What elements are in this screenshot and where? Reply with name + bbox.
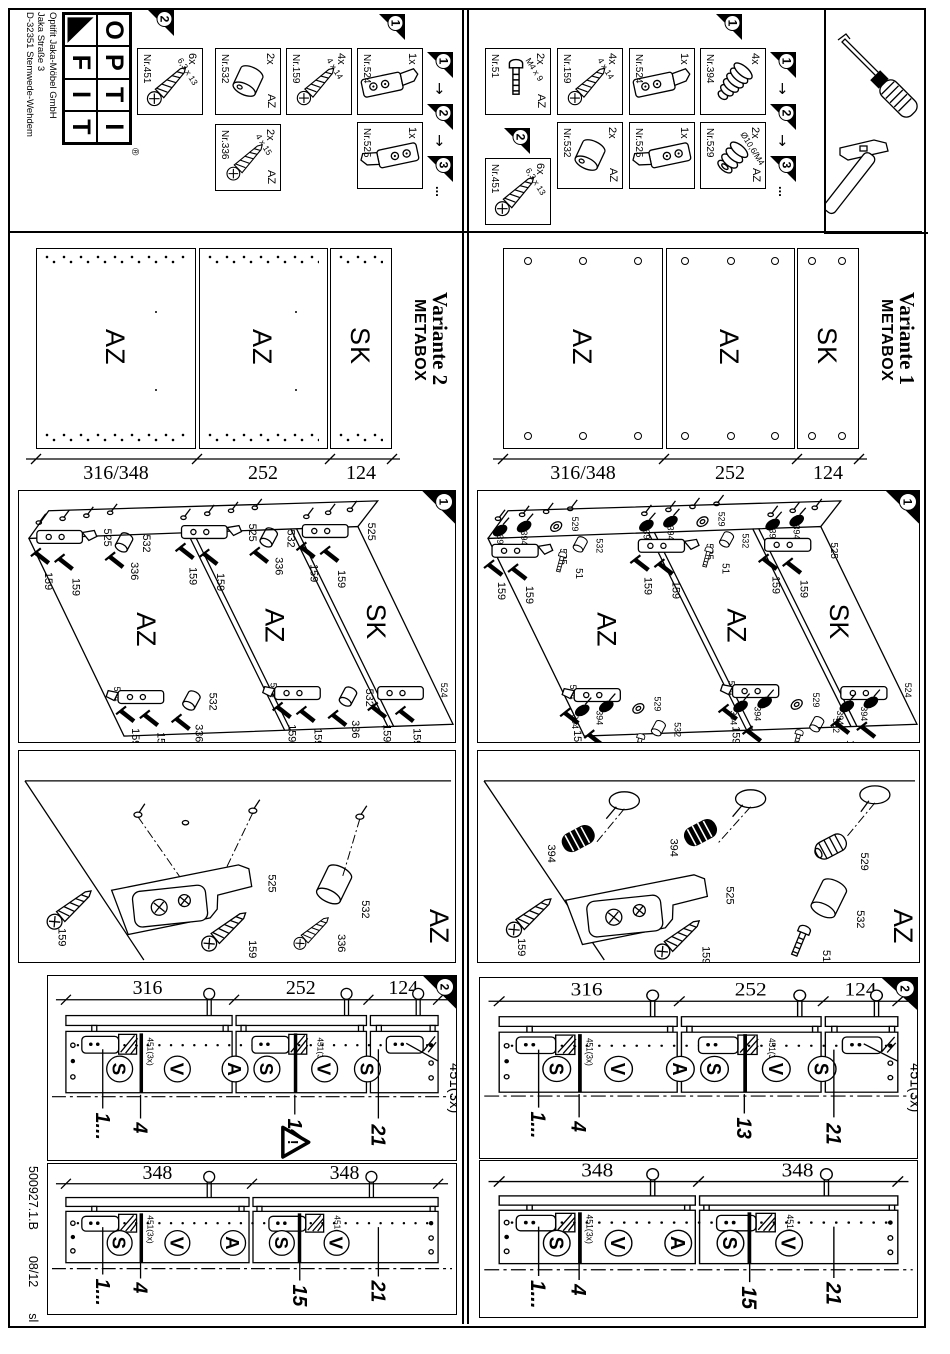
dimension-strip-v2: 316/348 252 124 [18,450,455,482]
part-ref: 159 [571,730,583,742]
panel-sk-v2: SK [330,248,392,449]
column-divider [462,8,464,1324]
sequence-more: ... [776,186,791,197]
hardware-group-top-sk: 394 394 525 159 159 [759,499,839,598]
hardware-group-top: 394 394 529 525 532 51 159 159 [484,500,604,604]
screw-159-icon [503,893,555,940]
panel-label: AZ [888,909,918,943]
logo-letter: I [97,111,130,143]
part-ref: 336 [128,562,140,580]
part-number: Nr.532 [219,54,230,83]
panel-label: SK [344,327,375,365]
flag-number: 3 [780,162,794,169]
arrow-down-icon: ↓ [776,80,789,98]
part-number: Nr.451 [141,54,152,83]
template-a-drawing-v1: 13 2 [480,978,917,1158]
logo-letter: T [64,111,97,143]
part-qty: 2x [606,127,618,139]
dimension-strip-v1 [485,450,922,482]
logo-letter: O [97,14,130,46]
panel-label: SK [824,604,854,640]
part-ref: 159 [70,578,82,596]
part-ref: 529 [858,853,870,871]
instruction-sheet: Optifit Jaka-Möbel GmbH Jaka Straße 3 D-… [0,0,950,1354]
part-ref: 524 [439,683,449,698]
step-flag-1: 1 [379,14,405,40]
detail-drawing-v1: 394 394 529 532 51 525 159 159 AZ [478,751,919,962]
slot-letter: S [256,1063,277,1076]
company-street: Jaka Straße 3 [35,12,47,202]
part-tag: AZ [265,170,277,184]
part-ref: 159 [495,582,507,600]
detail-box-v1: 394 394 529 532 51 525 159 159 AZ [477,750,920,963]
step1-drawing-v2: AZ AZ SK 525 532 336 159 159 525 [19,491,455,742]
variant1-subtitle: METABOX [877,299,895,381]
part-ref: 525 [365,523,377,541]
panel-az-2-v2: AZ [199,248,328,449]
part-box-529: 2x Nr.529 Ø10,6/M4 AZ [700,122,766,189]
part-ref: 159 [770,576,782,594]
step-flag-1: 1 [716,14,742,40]
company-name: Optifit Jaka-Möbel GmbH [47,12,59,202]
part-box-525: 1x Nr.525 [357,122,423,189]
part-ref: 394 [859,706,869,721]
mark-1: 1... [91,1113,113,1140]
part-ref: 394 [594,710,604,725]
step1-box-v2: AZ AZ SK 525 532 336 159 159 525 [18,490,456,743]
panel-az-1-v2: AZ [36,248,196,449]
dowel-394 [558,822,597,855]
part-ref: 532 [594,538,604,553]
step1-box-v1: AZ AZ SK 394 394 529 525 532 51 159 [477,490,920,743]
document-footer: 500927.1.B08/12sl [26,1166,40,1348]
bolt-51-icon [789,924,812,958]
dim-label: 348 [143,1164,173,1184]
part-tag: AZ [607,168,619,182]
part-ref: 159 [410,728,422,742]
flag-number: 3 [437,162,451,169]
hammer-icon [826,140,888,215]
part-box-51: 2x Nr.51 M4 x 9 AZ [485,48,551,115]
part-ref: 532 [140,534,152,552]
detail-drawing-v2: 159 159 525 532 336 AZ [19,751,455,962]
company-block: Optifit Jaka-Möbel GmbH Jaka Straße 3 D-… [24,12,64,212]
document-number: 500927.1.B [26,1166,40,1230]
part-box-525: 1x Nr.525 [629,122,695,189]
part-number: Nr.336 [219,130,230,159]
slot-letter: V [166,1237,187,1250]
corner-flag-2: 2 [882,978,917,1010]
registered-mark: ® [129,148,140,155]
part-ref: 525 [101,529,113,547]
mark-1: 1... [91,1278,113,1305]
drill-dots [339,254,383,265]
panel-label: AZ [424,909,454,943]
sequence-more: ... [433,186,448,197]
template-a-v1: 13 2 [479,977,918,1159]
drill-dots [45,254,187,265]
part-ref: 159 [515,938,527,956]
slot-letter: S [109,1063,130,1076]
part-ref: 159 [155,732,167,742]
part-ref: 159 [56,928,68,946]
slot-letter: V [314,1063,335,1076]
dim-label: 252 [248,462,278,482]
part-number: Nr.529 [704,128,715,157]
part-qty: 1x [406,53,418,65]
template-b-drawing-v1 [480,1161,917,1317]
part-ref: 524 [903,683,913,698]
dim-label: 316/348 [83,462,149,482]
variant2-title: Variante 2 [427,292,452,385]
fastener-label: 451(3x) [146,1037,156,1066]
corner-flag-2: 2 [423,976,456,1009]
drill-dots [339,432,383,443]
part-number: Nr.51 [489,54,500,78]
panel-label: AZ [260,608,290,642]
flag-number: 1 [726,20,740,27]
part-box-451: 6x Nr.451 6,3 x 13 [485,158,551,225]
part-ref: 525 [724,886,736,904]
screw-336-icon [292,913,333,951]
document-initials: sl [26,1313,40,1322]
part-number: Nr.525 [361,128,372,157]
dim-label: 252 [286,977,316,999]
part-tag: AZ [535,94,547,108]
drill-dots [208,432,319,443]
sequence-flag-1: 1 [427,52,453,78]
part-ref: 159 [42,572,54,590]
dowel-394 [681,816,720,849]
part-ref: 159 [798,580,810,598]
flag-number: 2 [897,985,912,992]
slot-letter: A [222,1236,243,1250]
company-city: D-32351 Stemwede-Wehdem [24,12,36,202]
dim-label: 348 [330,1164,360,1184]
part-ref: 529 [652,697,662,712]
panel-label: SK [361,604,391,640]
slot-letter: V [326,1237,347,1250]
part-ref: 525 [828,542,839,559]
template-a-v2: 316 252 124 [47,975,457,1161]
sleeve-529 [812,831,850,862]
part-ref: 159 [699,946,711,962]
detail-box-v2: 159 159 525 532 336 AZ [18,750,456,963]
drill-dots [208,254,319,265]
slot-letter: S [356,1063,377,1076]
dim-label: 316 [133,977,163,999]
part-ref: 51 [573,568,584,579]
part-ref: 336 [335,934,347,952]
flag-number: 2 [438,984,452,991]
part-ref: 532 [854,910,866,928]
part-ref: 525 [266,874,278,892]
panel-label: AZ [591,612,621,646]
part-ref: 159 [335,570,347,588]
sequence-flag-3: 3 [770,156,796,182]
part-ref: 394 [519,531,529,546]
document-date: 08/12 [26,1256,40,1287]
hardware-group-top: 525 532 336 159 159 [31,504,152,596]
part-number: Nr.159 [290,54,301,83]
panel-label: AZ [99,329,130,366]
flag-number: 2 [514,134,528,141]
template-b-drawing-v2: 348 348 [48,1164,456,1314]
part-qty: 4x [749,53,761,65]
logo-letter: P [97,46,130,78]
part-ref: 394 [667,839,679,857]
warning-mark: ! [284,1140,300,1145]
flag-number: 2 [780,110,794,117]
part-qty: 1x [406,127,418,139]
part-ref: 394 [792,525,802,540]
mark-21: 21 [366,1279,388,1302]
part-qty: 1x [678,127,690,139]
part-ref: 532 [206,693,218,711]
sequence-flag-2: 2 [770,104,796,130]
part-ref: 394 [545,845,557,863]
template-b-v1 [479,1160,918,1318]
step-flag-2: 2 [148,10,174,36]
panel-label: AZ [566,329,597,366]
sequence-flag-2: 2 [427,104,453,130]
part-box-336: 2x Nr.336 4 x 15 AZ [215,124,281,191]
variant2-subtitle: METABOX [410,299,428,381]
part-number: Nr.451 [489,164,500,193]
mark-4: 4 [129,1281,151,1293]
flag-number: 1 [437,499,451,506]
part-ref: 159 [381,724,393,742]
mark-15: 15 [288,1284,310,1307]
panel-label: AZ [131,612,161,646]
slot-letter: S [109,1237,130,1250]
flag-number: 2 [437,110,451,117]
part-ref: 532 [672,722,682,737]
slot-letter: A [224,1062,245,1076]
panel-label: AZ [246,329,277,366]
corner-flag-1: 1 [886,491,919,524]
part-box-159: 4x Nr.159 4 x 14 [557,48,623,115]
flag-number: 1 [437,58,451,65]
sequence-flag-3: 3 [427,156,453,182]
screwdriver-icon [838,34,920,120]
arrow-down-icon: ↓ [433,132,446,150]
cylinder-532 [314,862,354,907]
part-number: Nr.532 [561,128,572,157]
panel-sk-v1: SK [797,248,859,449]
part-number: Nr.524 [361,54,372,83]
part-box-524: 1x Nr.524 [629,48,695,115]
panel-label: SK [811,327,842,365]
part-number: Nr.394 [704,54,715,83]
part-qty: 2x [264,53,276,65]
column-divider-2 [467,8,469,1324]
logo-triangle-icon [64,14,97,46]
slot-letter: V [166,1063,187,1076]
part-box-532: 2x Nr.532 AZ [215,48,281,115]
part-ref: 532 [359,900,371,918]
panel-label: AZ [722,608,752,642]
part-ref: 159 [523,586,535,604]
part-box-159: 4x Nr.159 4 x 14 [286,48,352,115]
step1-drawing-v1: AZ AZ SK 394 394 529 525 532 51 159 [478,491,919,742]
screw-159-icon [44,885,96,932]
part-box-524: 1x Nr.524 [357,48,423,115]
tools-panel [824,8,928,234]
mark-21: 21 [366,1123,388,1146]
part-ref: 336 [192,724,204,742]
dim-label: 124 [346,462,376,482]
template-a-drawing-v2: 316 252 124 [48,976,456,1160]
header-rule [8,231,922,233]
mark-13: 13 [732,1117,755,1139]
arrow-down-icon: ↓ [433,80,446,98]
template-b-v2: 348 348 [47,1163,457,1315]
step-flag-2: 2 [504,128,530,154]
part-qty: 1x [678,53,690,65]
fastener-label-large: 451(3x) [446,1063,456,1113]
part-box-532: 2x Nr.532 AZ [557,122,623,189]
part-number: Nr.159 [561,54,572,83]
logo-letter: T [97,79,130,111]
drill-dots [45,432,187,443]
fastener-label: 451(3x) [146,1215,156,1244]
part-ref: 159 [246,940,258,958]
sequence-flag-1: 1 [770,52,796,78]
part-box-394: 4x Nr.394 [700,48,766,115]
part-number: Nr.525 [633,128,644,157]
flag-number: 2 [158,16,172,23]
flag-number: 1 [900,499,914,506]
part-box-451: 6x Nr.451 6,3 x 13 [137,48,203,115]
part-tag: AZ [265,94,277,108]
part-tag: AZ [750,168,762,182]
slot-letter: S [271,1237,292,1250]
variant1-title: Variante 1 [894,292,919,385]
arrow-down-icon: ↓ [776,132,789,150]
panel-az-2-v1: AZ [666,248,795,449]
part-ref: 159 [307,564,319,582]
optifit-logo: O P T I F I T ® [62,12,132,145]
mark-4: 4 [129,1121,151,1133]
cylinder-532 [809,876,849,921]
logo-letter: F [64,46,97,78]
flag-number: 1 [780,58,794,65]
hardware-group-top-sk: 525 159 159 [296,501,376,588]
panel-az-1-v1: AZ [503,248,663,449]
part-ref: 529 [570,517,580,532]
logo-letter: I [64,79,97,111]
part-ref: 51 [820,950,832,962]
corner-flag-1: 1 [422,491,455,524]
part-number: Nr.524 [633,54,644,83]
part-ref: 159 [844,740,856,742]
part-ref: 159 [129,728,141,742]
panel-label: AZ [713,329,744,366]
flag-number: 1 [389,20,403,27]
